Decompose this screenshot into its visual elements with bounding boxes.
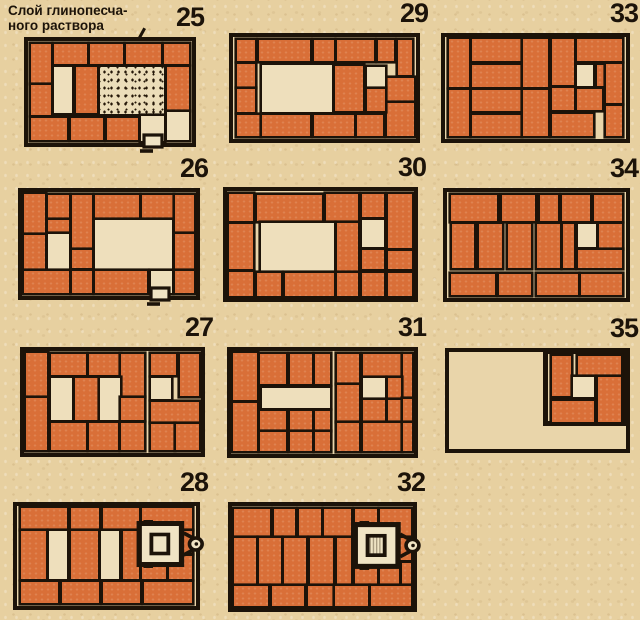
brick xyxy=(48,220,69,231)
brick xyxy=(314,40,334,61)
brick xyxy=(237,64,255,87)
brick xyxy=(142,195,173,218)
void-area xyxy=(261,223,334,272)
brick xyxy=(71,531,98,579)
brick xyxy=(175,271,194,293)
brick xyxy=(502,195,534,220)
brick xyxy=(537,274,578,295)
brick xyxy=(234,586,268,606)
brick xyxy=(537,224,560,269)
brick xyxy=(562,195,591,220)
brick xyxy=(337,423,359,451)
brick xyxy=(335,66,362,112)
brick xyxy=(121,423,144,450)
brick xyxy=(594,195,623,220)
brick xyxy=(472,65,521,87)
brick xyxy=(180,354,199,396)
brick xyxy=(95,195,139,218)
void-area xyxy=(167,112,188,140)
void-area xyxy=(48,234,69,269)
cleanout-door-glyph xyxy=(140,133,166,153)
brick xyxy=(388,194,412,248)
course-panel-26 xyxy=(18,188,200,300)
brick xyxy=(151,402,199,422)
brick xyxy=(72,250,91,268)
brick xyxy=(62,582,100,603)
brick xyxy=(90,44,123,64)
brick xyxy=(403,354,412,397)
brick xyxy=(363,423,401,451)
void-area xyxy=(362,220,384,247)
brick xyxy=(31,44,51,83)
brick xyxy=(290,354,312,384)
brick xyxy=(167,67,188,111)
brick xyxy=(357,115,383,136)
cleanout-door-icon xyxy=(140,133,166,153)
brick xyxy=(598,377,621,422)
brick xyxy=(107,118,138,140)
brick xyxy=(260,432,286,451)
brick xyxy=(552,401,594,422)
course-panel-28 xyxy=(13,502,200,610)
void-area xyxy=(578,224,596,247)
brick xyxy=(523,90,548,136)
course-panel-30 xyxy=(223,187,418,302)
brick xyxy=(24,235,45,269)
brick xyxy=(335,586,368,606)
brick xyxy=(257,273,281,295)
brick xyxy=(31,85,51,116)
brick xyxy=(257,195,322,221)
damper-valve-icon xyxy=(351,521,422,570)
brick xyxy=(89,354,119,375)
brick xyxy=(233,353,257,400)
brick xyxy=(260,354,286,384)
brick xyxy=(337,273,358,295)
brick xyxy=(76,67,97,114)
void-area xyxy=(262,388,330,408)
brick xyxy=(234,538,256,584)
course-panel-33 xyxy=(441,33,630,143)
course-number-30: 30 xyxy=(223,154,426,181)
cleanout-door-icon xyxy=(147,286,173,306)
brick xyxy=(499,274,531,295)
brick xyxy=(260,411,286,431)
damper-valve-glyph xyxy=(135,520,205,568)
brick xyxy=(103,582,141,603)
brick xyxy=(563,224,574,269)
brick xyxy=(176,424,199,450)
brick xyxy=(21,531,46,579)
brick xyxy=(144,582,192,603)
course-number-26: 26 xyxy=(18,155,208,182)
brick xyxy=(121,398,144,420)
brick xyxy=(472,90,521,111)
brick xyxy=(337,354,359,383)
course-number-28: 28 xyxy=(13,469,208,496)
brick xyxy=(452,224,473,269)
brick xyxy=(75,378,98,421)
course-number-25: 25 xyxy=(24,4,204,31)
brick xyxy=(606,106,622,136)
void-area xyxy=(49,531,67,579)
brick xyxy=(337,40,374,61)
brick xyxy=(51,354,86,375)
brick xyxy=(121,354,144,396)
brick xyxy=(21,508,68,529)
brick xyxy=(577,89,602,110)
brick xyxy=(315,354,330,384)
brick xyxy=(229,194,253,221)
brick xyxy=(403,399,412,421)
brick xyxy=(362,194,384,216)
brick xyxy=(597,65,604,86)
course-number-35: 35 xyxy=(445,315,638,342)
brick xyxy=(581,274,622,295)
brick xyxy=(89,423,117,450)
damper-valve-glyph xyxy=(351,521,422,570)
brick xyxy=(388,400,401,421)
course-number-34: 34 xyxy=(443,155,638,182)
brick xyxy=(285,273,334,295)
course-panel-31 xyxy=(227,347,418,458)
brick xyxy=(234,509,270,536)
mortar-layer-area xyxy=(100,67,164,115)
brick xyxy=(31,118,67,140)
brick xyxy=(479,224,502,269)
brick xyxy=(48,195,69,218)
brick xyxy=(337,385,359,421)
brick xyxy=(233,403,257,451)
brick xyxy=(606,64,622,104)
brick xyxy=(552,114,594,136)
brick xyxy=(398,40,413,75)
brick xyxy=(126,44,160,64)
brick xyxy=(508,224,531,269)
brick xyxy=(552,39,574,85)
brick xyxy=(274,509,296,536)
brick xyxy=(314,115,354,136)
brick xyxy=(310,538,334,584)
brick xyxy=(388,378,401,399)
void-area xyxy=(363,378,385,399)
brick xyxy=(378,40,394,61)
course-number-33: 33 xyxy=(441,0,638,27)
brick xyxy=(237,40,255,61)
brick xyxy=(71,118,104,140)
brick xyxy=(449,90,469,136)
brick xyxy=(175,195,194,231)
brick xyxy=(151,354,176,375)
brick xyxy=(290,411,312,431)
brick xyxy=(259,538,281,584)
brick xyxy=(367,89,385,111)
brick xyxy=(363,354,401,376)
brick xyxy=(578,250,623,268)
brick xyxy=(24,194,45,232)
brick xyxy=(362,273,384,295)
brick xyxy=(272,586,305,606)
course-number-31: 31 xyxy=(227,314,426,341)
cleanout-door-glyph xyxy=(147,286,173,306)
brick xyxy=(259,40,310,61)
void-area xyxy=(95,220,172,269)
brick xyxy=(363,400,385,421)
course-panel-35 xyxy=(445,348,630,453)
brick xyxy=(388,251,412,269)
course-number-32: 32 xyxy=(228,469,425,496)
brick xyxy=(315,411,330,431)
brick xyxy=(103,508,139,529)
brick xyxy=(315,432,330,451)
brick xyxy=(472,115,521,136)
brick xyxy=(54,44,87,64)
brick xyxy=(164,44,189,64)
void-area xyxy=(367,67,385,87)
brick xyxy=(299,509,321,536)
brick xyxy=(262,115,310,136)
brick xyxy=(26,398,47,450)
brick xyxy=(599,224,622,248)
brick xyxy=(229,272,253,296)
brick-course-diagram-page: Слой глинопесча- ного раствора 252933263… xyxy=(0,0,640,620)
brick xyxy=(451,195,498,220)
void-area xyxy=(101,531,119,579)
void-area xyxy=(54,67,72,114)
brick xyxy=(237,89,255,112)
void-area xyxy=(262,65,332,113)
brick xyxy=(72,271,91,293)
brick xyxy=(21,582,59,603)
void-area xyxy=(51,378,72,421)
brick xyxy=(403,423,412,451)
brick xyxy=(51,423,86,450)
brick xyxy=(451,274,496,295)
brick xyxy=(362,250,384,269)
course-number-27: 27 xyxy=(20,314,213,341)
brick xyxy=(26,353,47,396)
course-number-29: 29 xyxy=(229,0,428,27)
brick xyxy=(237,115,261,136)
brick xyxy=(324,509,351,536)
brick xyxy=(175,234,194,269)
brick xyxy=(72,195,91,248)
brick xyxy=(308,586,333,606)
brick xyxy=(71,508,100,529)
course-panel-29 xyxy=(229,33,420,143)
brick xyxy=(387,103,414,136)
brick xyxy=(523,39,548,87)
brick xyxy=(337,223,358,272)
void-area xyxy=(151,378,170,399)
brick xyxy=(449,39,469,87)
brick xyxy=(388,273,412,295)
brick xyxy=(387,78,414,101)
void-area xyxy=(573,377,594,396)
brick xyxy=(577,39,622,61)
brick xyxy=(151,424,174,450)
course-panel-25 xyxy=(24,37,196,147)
void-area xyxy=(100,378,119,421)
brick xyxy=(326,194,358,221)
course-panel-34 xyxy=(443,188,630,302)
brick xyxy=(578,356,620,375)
damper-valve-icon xyxy=(135,520,205,568)
course-panel-32 xyxy=(228,502,417,612)
course-panel-27 xyxy=(20,347,205,457)
brick xyxy=(371,586,411,606)
brick xyxy=(24,271,69,293)
brick xyxy=(472,39,521,61)
brick xyxy=(540,195,558,220)
brick xyxy=(337,538,351,584)
brick xyxy=(552,88,574,110)
brick xyxy=(229,224,253,269)
void-area xyxy=(577,65,593,86)
brick xyxy=(95,271,147,293)
brick xyxy=(552,356,571,396)
brick xyxy=(284,538,306,584)
brick xyxy=(290,432,312,451)
